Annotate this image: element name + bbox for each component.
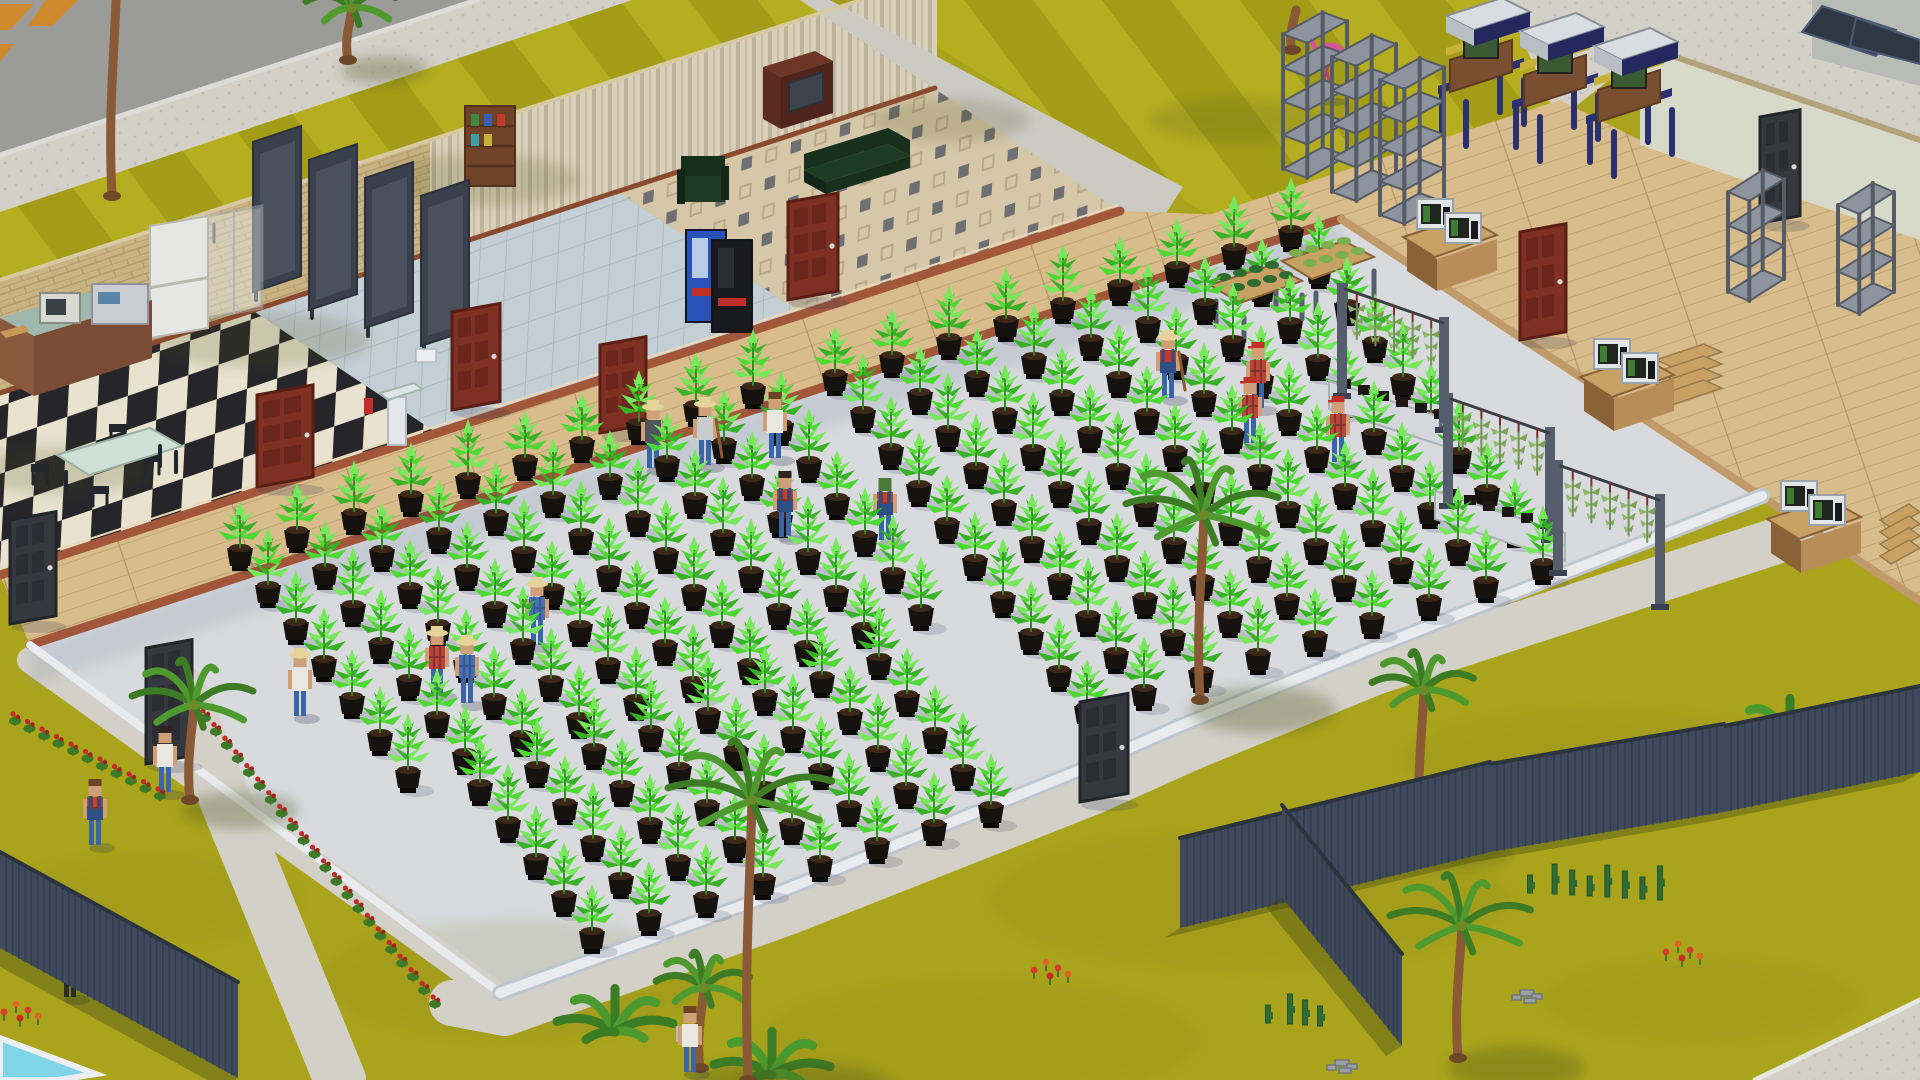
shower-stall[interactable] [206, 206, 262, 318]
game-screenshot [0, 0, 1920, 1080]
refrigerator[interactable] [150, 216, 208, 338]
supply-shelf[interactable] [465, 106, 515, 186]
couch[interactable] [677, 156, 729, 204]
vending-machine[interactable] [712, 240, 752, 332]
game-world-viewport[interactable] [0, 0, 1920, 1080]
